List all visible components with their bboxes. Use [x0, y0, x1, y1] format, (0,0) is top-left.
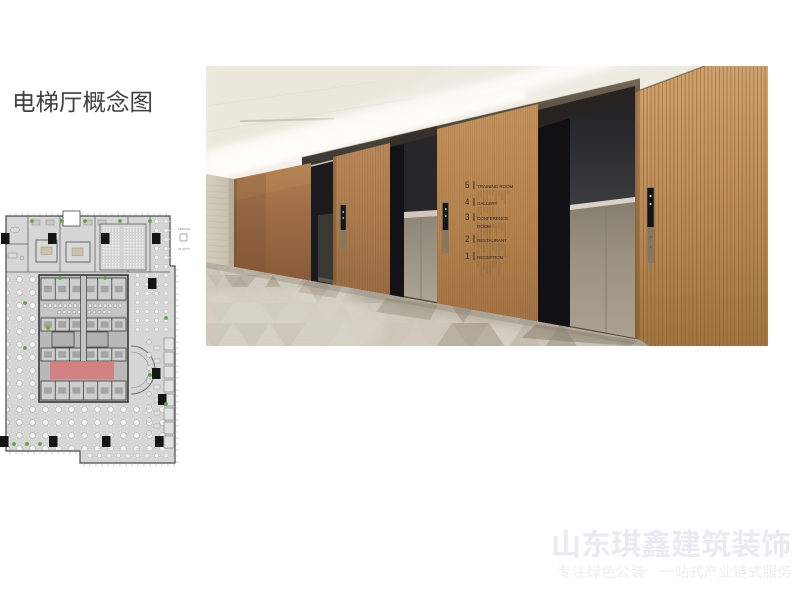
svg-text:RESTAURANT: RESTAURANT [477, 238, 507, 243]
svg-text:CONFERENCE: CONFERENCE [477, 216, 508, 221]
svg-text:5: 5 [465, 180, 470, 191]
svg-text:1: 1 [465, 251, 470, 262]
svg-text:2: 2 [465, 234, 470, 245]
svg-text:TRAINING ROOM: TRAINING ROOM [477, 184, 513, 189]
svg-text:28 HOTS: 28 HOTS [178, 247, 190, 251]
svg-text:4: 4 [465, 197, 470, 208]
svg-text:SERVICE: SERVICE [178, 227, 190, 231]
svg-text:3: 3 [465, 212, 470, 223]
